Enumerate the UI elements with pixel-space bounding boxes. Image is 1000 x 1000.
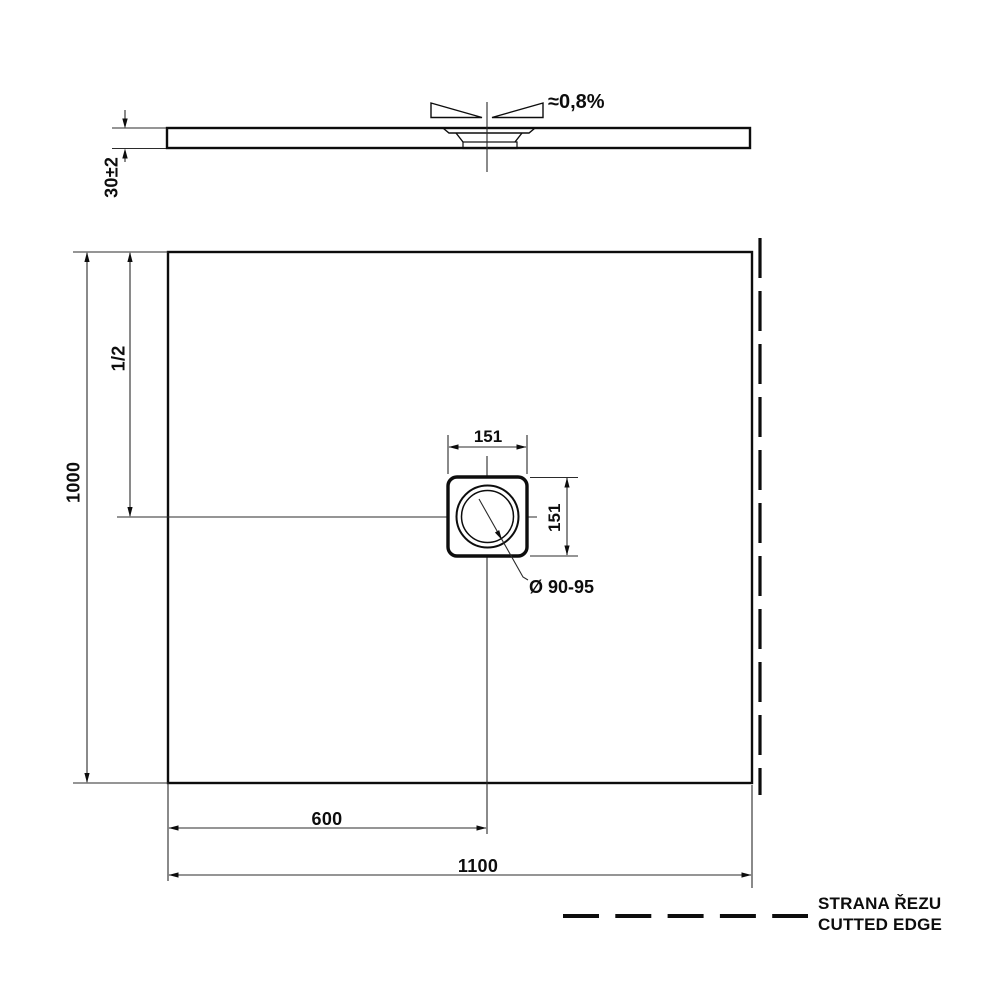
width-dimension-label: 1100 bbox=[438, 856, 518, 877]
thickness-dimension-label: 30±2 bbox=[102, 142, 123, 212]
plan-view bbox=[73, 238, 760, 888]
half-height-dimension-label: 1/2 bbox=[109, 328, 130, 388]
drawing-linework bbox=[0, 0, 1000, 1000]
drawing-canvas: 30±2 ≈0,8% 1/2 1000 151 151 Ø 90-95 600 … bbox=[0, 0, 1000, 1000]
height-dimension-label: 1000 bbox=[64, 452, 85, 512]
tray-profile-outline bbox=[167, 128, 750, 148]
extension-lines bbox=[73, 252, 752, 888]
drain-plan bbox=[448, 477, 527, 556]
legend-label-english: CUTTED EDGE bbox=[818, 915, 942, 935]
drain-square bbox=[448, 477, 527, 556]
legend-label-czech: STRANA ŘEZU bbox=[818, 894, 941, 914]
drain-diameter-label: Ø 90-95 bbox=[529, 577, 594, 598]
drain-profile bbox=[444, 129, 535, 149]
drain-height-dimension-label: 151 bbox=[545, 488, 565, 548]
drain-offset-dimension-label: 600 bbox=[287, 809, 367, 830]
side-view bbox=[112, 102, 750, 172]
dim-height-1000 bbox=[84, 252, 89, 783]
slope-label: ≈0,8% bbox=[548, 91, 605, 114]
drain-width-dimension-label: 151 bbox=[448, 427, 528, 447]
